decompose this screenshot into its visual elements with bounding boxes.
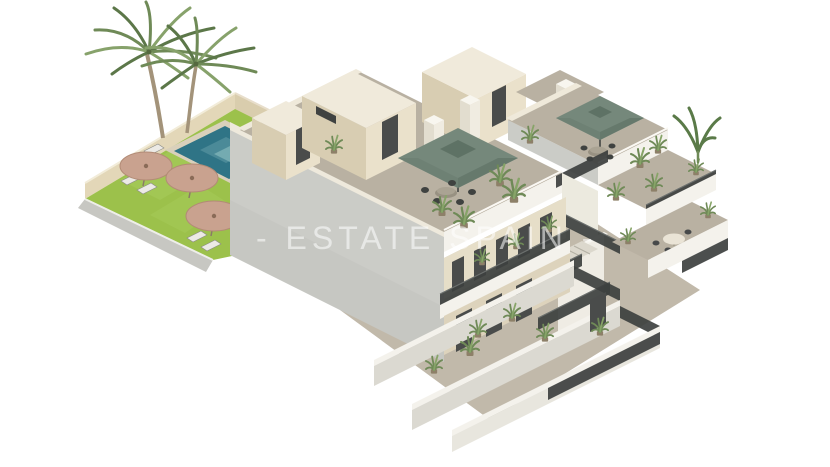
bulkhead-door [492,85,506,127]
bulkhead-door [382,114,398,160]
palm-fronds [86,2,256,92]
palm-trunk [147,54,163,138]
render-canvas: - ESTATE SPAIN - [0,0,830,467]
banana-plant [674,108,720,162]
building-render [0,0,830,467]
